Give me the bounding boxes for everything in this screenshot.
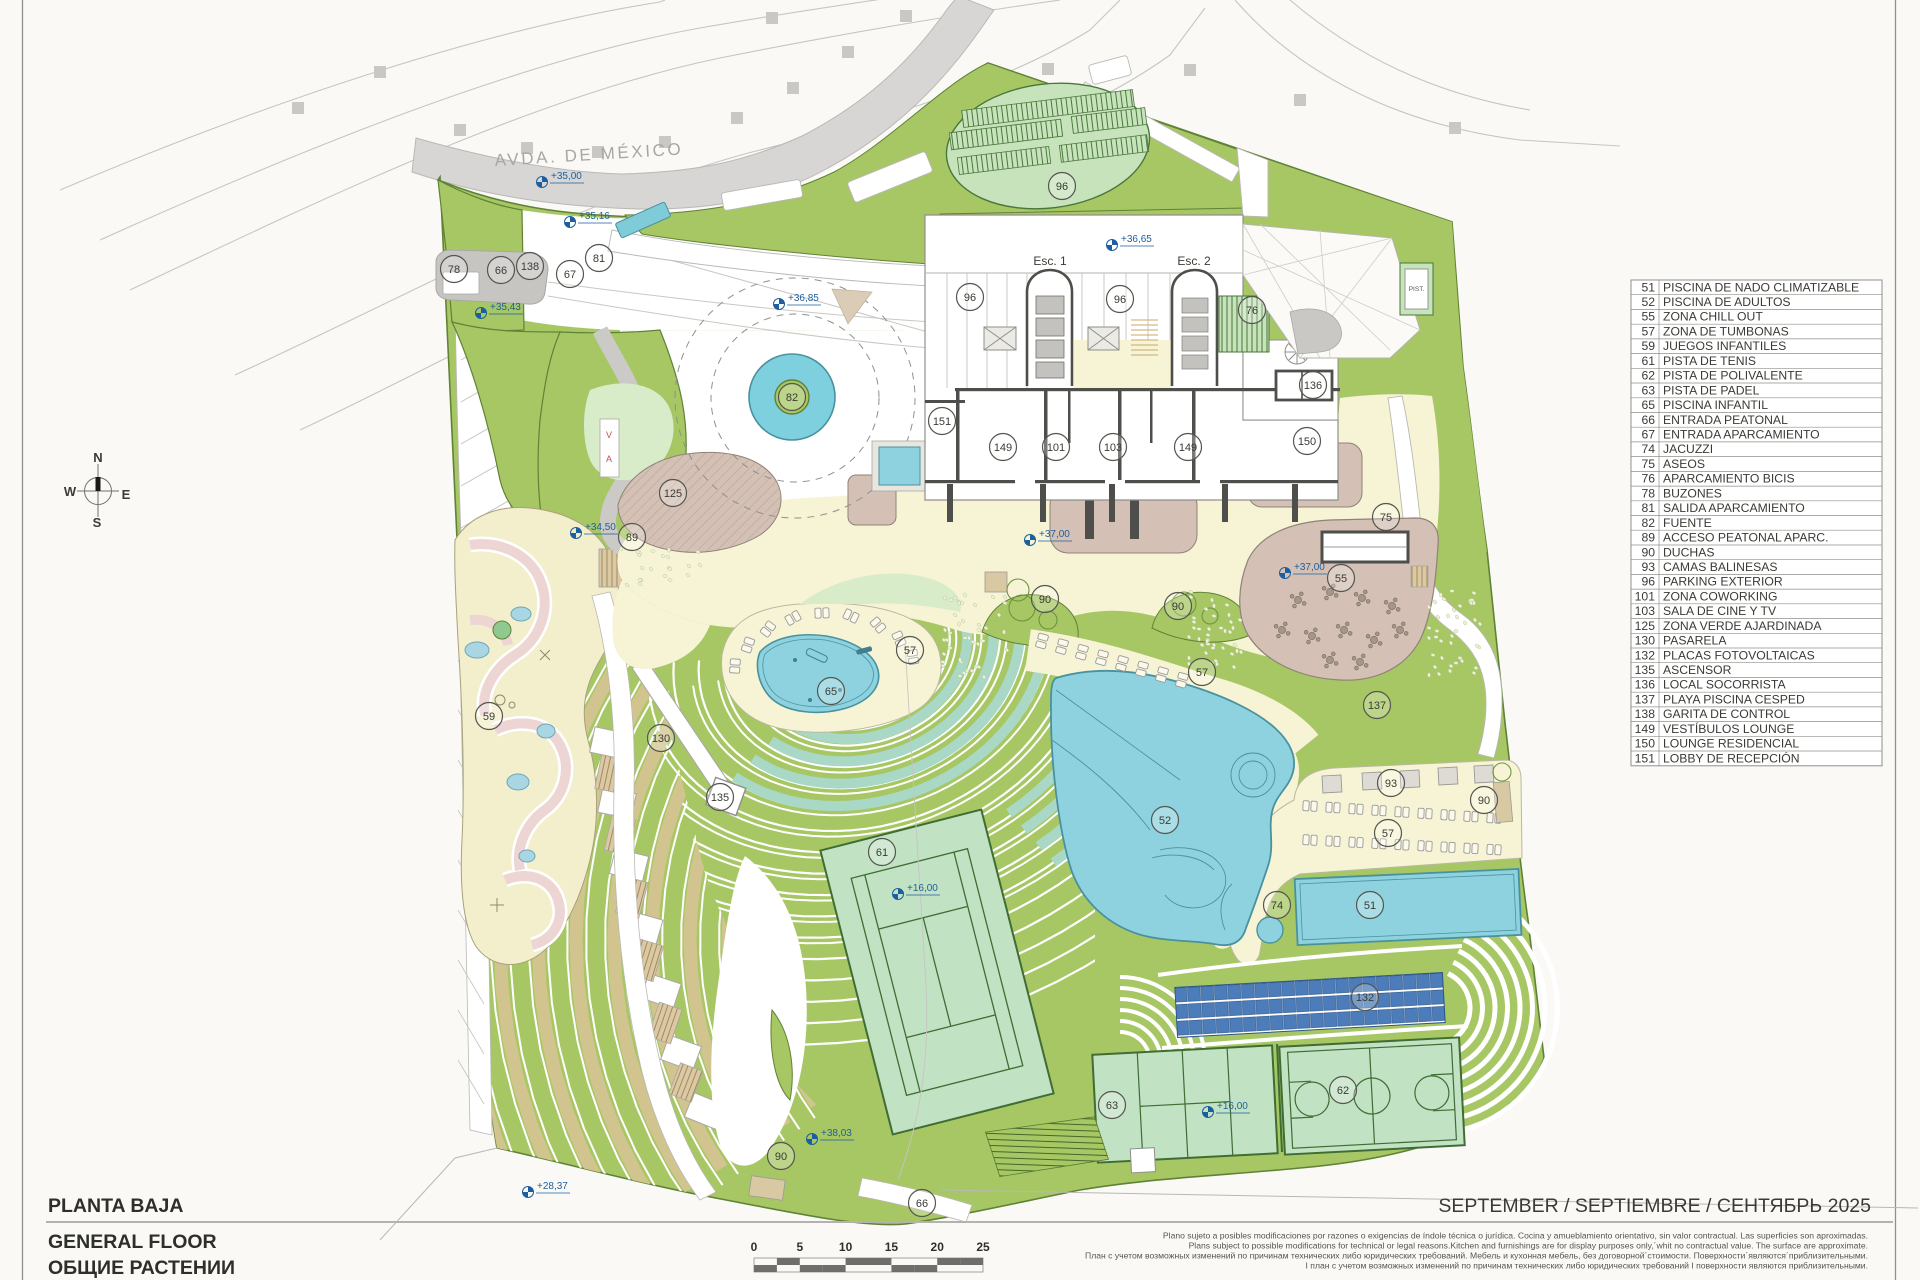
svg-text:136: 136: [1304, 380, 1322, 392]
svg-text:PISCINA INFANTIL: PISCINA INFANTIL: [1663, 398, 1768, 412]
svg-text:96: 96: [1641, 575, 1655, 589]
svg-text:82: 82: [1641, 516, 1655, 530]
svg-text:LOBBY DE RECEPCIÓN: LOBBY DE RECEPCIÓN: [1663, 750, 1800, 765]
svg-text:52: 52: [1641, 295, 1655, 309]
svg-text:ZONA COWORKING: ZONA COWORKING: [1663, 589, 1777, 603]
svg-text:149: 149: [994, 442, 1012, 454]
svg-text:ZONA DE TUMBONAS: ZONA DE TUMBONAS: [1663, 325, 1789, 339]
svg-text:+28,37: +28,37: [537, 1181, 568, 1192]
svg-text:+16,00: +16,00: [907, 883, 938, 894]
svg-text:65: 65: [825, 686, 837, 698]
svg-text:130: 130: [652, 733, 670, 745]
svg-text:APARCAMIENTO BICIS: APARCAMIENTO BICIS: [1663, 472, 1795, 486]
svg-text:135: 135: [1635, 663, 1656, 677]
svg-text:PISCINA DE ADULTOS: PISCINA DE ADULTOS: [1663, 295, 1791, 309]
svg-text:LOCAL SOCORRISTA: LOCAL SOCORRISTA: [1663, 678, 1786, 692]
svg-text:ОБЩИЕ РАСТЕНИИ: ОБЩИЕ РАСТЕНИИ: [48, 1257, 235, 1279]
svg-text:135: 135: [711, 792, 729, 804]
svg-text:150: 150: [1635, 737, 1656, 751]
svg-text:ASEOS: ASEOS: [1663, 457, 1705, 471]
svg-text:57: 57: [1641, 325, 1655, 339]
svg-text:78: 78: [448, 264, 460, 276]
svg-text:VESTÍBULOS LOUNGE: VESTÍBULOS LOUNGE: [1663, 721, 1794, 736]
svg-text:93: 93: [1385, 778, 1397, 790]
svg-text:PISTA DE PADEL: PISTA DE PADEL: [1663, 383, 1760, 397]
svg-text:62: 62: [1337, 1085, 1349, 1097]
svg-text:5: 5: [796, 1240, 803, 1254]
svg-text:GENERAL FLOOR: GENERAL FLOOR: [48, 1231, 217, 1253]
svg-text:137: 137: [1368, 700, 1386, 712]
svg-text:136: 136: [1635, 678, 1656, 692]
svg-text:103: 103: [1635, 604, 1656, 618]
svg-text:132: 132: [1635, 648, 1656, 662]
svg-text:75: 75: [1641, 457, 1655, 471]
svg-text:PIST.: PIST.: [1409, 286, 1425, 293]
svg-text:JUEGOS INFANTILES: JUEGOS INFANTILES: [1663, 339, 1786, 353]
svg-text:S: S: [93, 515, 102, 530]
svg-text:101: 101: [1635, 589, 1656, 603]
svg-text:90: 90: [1641, 545, 1655, 559]
svg-text:149: 149: [1635, 722, 1656, 736]
svg-text:N: N: [93, 450, 102, 465]
svg-text:51: 51: [1364, 900, 1376, 912]
svg-text:Plano sujeto a posibles modifi: Plano sujeto a posibles modificaciones p…: [1163, 1231, 1868, 1241]
svg-text:LOUNGE RESIDENCIAL: LOUNGE RESIDENCIAL: [1663, 737, 1799, 751]
svg-text:96: 96: [964, 292, 976, 304]
svg-text:PISTA DE POLIVALENTE: PISTA DE POLIVALENTE: [1663, 369, 1803, 383]
svg-text:138: 138: [521, 261, 539, 273]
svg-text:52: 52: [1159, 815, 1171, 827]
svg-text:SALA DE CINE Y TV: SALA DE CINE Y TV: [1663, 604, 1777, 618]
svg-text:PISCINA DE NADO CLIMATIZABLE: PISCINA DE NADO CLIMATIZABLE: [1663, 280, 1859, 294]
svg-text:57: 57: [1382, 828, 1394, 840]
svg-text:51: 51: [1641, 280, 1655, 294]
svg-text:PISTA DE TENIS: PISTA DE TENIS: [1663, 354, 1756, 368]
svg-text:+38,03: +38,03: [821, 1128, 852, 1139]
svg-text:ACCESO PEATONAL APARC.: ACCESO PEATONAL APARC.: [1663, 531, 1828, 545]
svg-text:78: 78: [1641, 486, 1655, 500]
svg-text:57: 57: [1196, 667, 1208, 679]
svg-text:PARKING EXTERIOR: PARKING EXTERIOR: [1663, 575, 1783, 589]
svg-text:90: 90: [775, 1151, 787, 1163]
svg-text:74: 74: [1271, 900, 1283, 912]
svg-text:63: 63: [1106, 1100, 1118, 1112]
svg-text:103: 103: [1104, 442, 1122, 454]
svg-text:96: 96: [1114, 294, 1126, 306]
svg-text:+16,00: +16,00: [1217, 1101, 1248, 1112]
svg-text:76: 76: [1641, 472, 1655, 486]
svg-text:PLANTA BAJA: PLANTA BAJA: [48, 1195, 183, 1217]
svg-text:SEPTEMBER / SEPTIEMBRE / СЕНТЯ: SEPTEMBER / SEPTIEMBRE / СЕНТЯБРЬ 2025: [1438, 1195, 1871, 1217]
svg-text:15: 15: [885, 1240, 899, 1254]
svg-text:PLACAS FOTOVOLTAICAS: PLACAS FOTOVOLTAICAS: [1663, 648, 1815, 662]
svg-text:138: 138: [1635, 707, 1656, 721]
svg-text:PLAYA PISCINA CESPED: PLAYA PISCINA CESPED: [1663, 693, 1805, 707]
svg-text:66: 66: [495, 265, 507, 277]
svg-text:61: 61: [1641, 354, 1655, 368]
svg-text:ASCENSOR: ASCENSOR: [1663, 663, 1732, 677]
svg-text:ZONA VERDE AJARDINADA: ZONA VERDE AJARDINADA: [1663, 619, 1822, 633]
svg-text:151: 151: [1635, 751, 1656, 765]
svg-text:57: 57: [904, 645, 916, 657]
svg-text:PASARELA: PASARELA: [1663, 634, 1727, 648]
svg-text:82: 82: [786, 392, 798, 404]
svg-text:74: 74: [1641, 442, 1655, 456]
svg-text:+34,50: +34,50: [585, 522, 616, 533]
svg-text:75: 75: [1380, 512, 1392, 524]
svg-text:10: 10: [839, 1240, 853, 1254]
svg-text:96: 96: [1056, 181, 1068, 193]
svg-text:JACUZZI: JACUZZI: [1663, 442, 1713, 456]
svg-text:65: 65: [1641, 398, 1655, 412]
svg-text:59: 59: [1641, 339, 1655, 353]
svg-text:+36,85: +36,85: [788, 293, 819, 304]
svg-text:BUZONES: BUZONES: [1663, 486, 1722, 500]
svg-text:101: 101: [1047, 442, 1065, 454]
svg-text:67: 67: [564, 269, 576, 281]
svg-text:0: 0: [751, 1240, 758, 1254]
svg-text:132: 132: [1356, 992, 1374, 1004]
svg-text:66: 66: [1641, 413, 1655, 427]
svg-text:89: 89: [626, 532, 638, 544]
svg-text:89: 89: [1641, 531, 1655, 545]
svg-text:SALIDA APARCAMIENTO: SALIDA APARCAMIENTO: [1663, 501, 1805, 515]
svg-text:137: 137: [1635, 693, 1656, 707]
svg-text:76: 76: [1246, 305, 1258, 317]
svg-text:81: 81: [1641, 501, 1655, 515]
svg-text:63: 63: [1641, 383, 1655, 397]
svg-text:+36,65: +36,65: [1121, 234, 1152, 245]
svg-text:+37,00: +37,00: [1039, 529, 1070, 540]
svg-text:90: 90: [1172, 601, 1184, 613]
svg-text:55: 55: [1641, 310, 1655, 324]
svg-text:59: 59: [483, 711, 495, 723]
svg-text:FUENTE: FUENTE: [1663, 516, 1712, 530]
svg-text:130: 130: [1635, 634, 1656, 648]
svg-text:E: E: [122, 487, 131, 502]
svg-text:План с учетом возможных измене: План с учетом возможных изменений по при…: [1085, 1251, 1868, 1261]
svg-text:DUCHAS: DUCHAS: [1663, 545, 1714, 559]
svg-text:A: A: [606, 454, 612, 464]
svg-text:90: 90: [1478, 795, 1490, 807]
svg-text:93: 93: [1641, 560, 1655, 574]
svg-text:149: 149: [1179, 442, 1197, 454]
svg-text:Esc. 1: Esc. 1: [1033, 254, 1067, 268]
svg-text:+35,16: +35,16: [579, 211, 610, 222]
svg-text:61: 61: [876, 847, 888, 859]
svg-text:W: W: [64, 484, 77, 499]
svg-text:Plans subject to possible modi: Plans subject to possible modifications …: [1189, 1241, 1868, 1251]
svg-text:+35,00: +35,00: [551, 171, 582, 182]
svg-text:151: 151: [933, 416, 951, 428]
svg-text:GARITA DE CONTROL: GARITA DE CONTROL: [1663, 707, 1790, 721]
svg-text:55: 55: [1335, 573, 1347, 585]
svg-text:ZONA CHILL OUT: ZONA CHILL OUT: [1663, 310, 1763, 324]
svg-text:66: 66: [916, 1198, 928, 1210]
svg-text:125: 125: [664, 488, 682, 500]
svg-text:V: V: [606, 430, 612, 440]
svg-text:І план с учетом возможных изме: І план с учетом возможных изменений по п…: [1306, 1261, 1868, 1271]
svg-text:25: 25: [976, 1240, 990, 1254]
svg-text:81: 81: [593, 253, 605, 265]
svg-text:Esc. 2: Esc. 2: [1177, 254, 1211, 268]
svg-text:CAMAS BALINESAS: CAMAS BALINESAS: [1663, 560, 1777, 574]
svg-text:90: 90: [1039, 594, 1051, 606]
svg-text:125: 125: [1635, 619, 1656, 633]
svg-text:67: 67: [1641, 428, 1655, 442]
svg-text:+37,00: +37,00: [1294, 562, 1325, 573]
svg-text:ENTRADA PEATONAL: ENTRADA PEATONAL: [1663, 413, 1788, 427]
svg-text:62: 62: [1641, 369, 1655, 383]
svg-text:+35,43: +35,43: [490, 302, 521, 313]
svg-text:150: 150: [1298, 436, 1316, 448]
svg-text:20: 20: [931, 1240, 945, 1254]
svg-text:ENTRADA APARCAMIENTO: ENTRADA APARCAMIENTO: [1663, 428, 1820, 442]
